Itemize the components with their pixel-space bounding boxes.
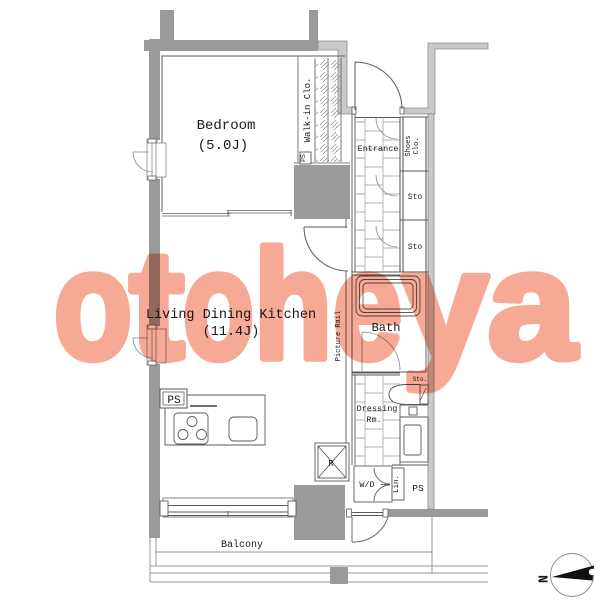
svg-text:R: R [328, 459, 334, 469]
svg-text:Entrance: Entrance [358, 144, 399, 154]
svg-text:y: y [402, 218, 488, 390]
svg-text:(5.0J): (5.0J) [198, 138, 248, 154]
svg-text:o: o [54, 218, 132, 390]
svg-text:Shoes: Shoes [405, 135, 413, 156]
svg-text:PS: PS [167, 395, 181, 407]
svg-text:Dressing: Dressing [357, 404, 398, 414]
svg-text:Sto: Sto [408, 193, 423, 202]
svg-text:h: h [254, 218, 332, 390]
svg-text:a: a [488, 218, 578, 390]
svg-text:PS: PS [300, 154, 307, 162]
svg-text:Bedroom: Bedroom [197, 118, 256, 134]
svg-text:Lin.: Lin. [393, 475, 401, 493]
svg-text:e: e [333, 218, 402, 390]
svg-text:PS: PS [412, 483, 424, 494]
svg-text:Walk-in Clo.: Walk-in Clo. [303, 78, 313, 143]
svg-text:Rm.: Rm. [366, 415, 381, 425]
svg-text:Balcony: Balcony [221, 539, 263, 551]
svg-text:N: N [534, 575, 549, 583]
svg-text:Clo.: Clo. [413, 138, 421, 155]
svg-text:W/D: W/D [359, 480, 374, 490]
svg-text:t: t [130, 218, 184, 390]
svg-text:o: o [183, 218, 254, 390]
